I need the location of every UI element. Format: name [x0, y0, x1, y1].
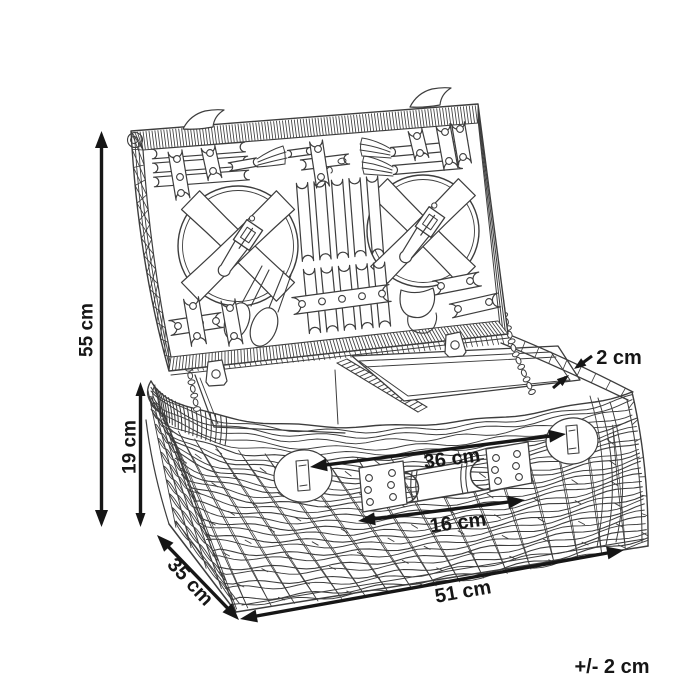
svg-text:55 cm: 55 cm — [77, 303, 98, 357]
svg-text:2 cm: 2 cm — [596, 347, 642, 369]
svg-text:+/- 2 cm: +/- 2 cm — [574, 656, 649, 678]
svg-text:19 cm: 19 cm — [120, 420, 141, 474]
